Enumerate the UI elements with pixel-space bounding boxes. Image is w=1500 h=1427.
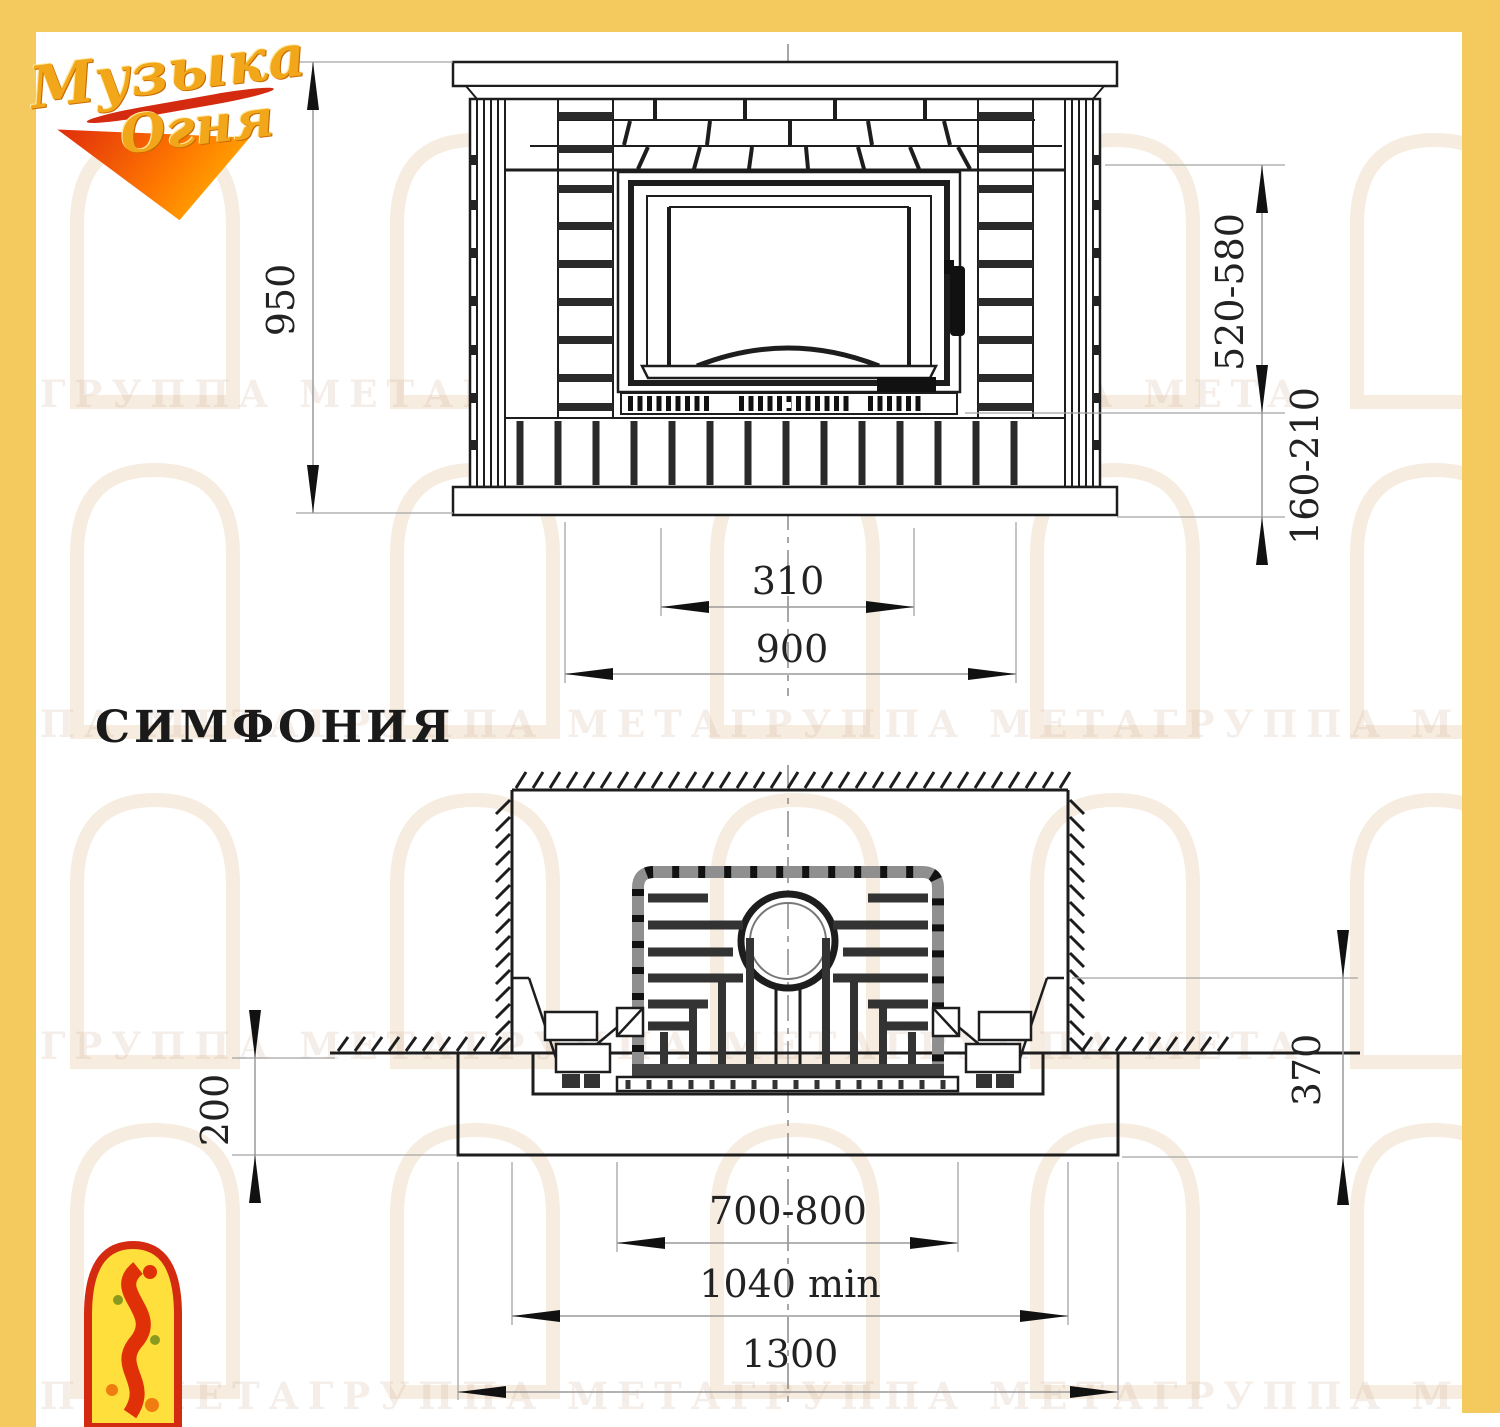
dim-firebox-top: 520-580 <box>1208 213 1252 371</box>
dim-insert-width: 700-800 <box>709 1189 867 1233</box>
dim-body-width: 900 <box>756 627 829 671</box>
dim-firebox-bottom: 160-210 <box>1283 387 1327 545</box>
emblem-dot <box>150 1335 160 1345</box>
base-plinth <box>453 487 1117 515</box>
frame-right-bar <box>1462 32 1500 1413</box>
brand-logo: Музыка Огня <box>18 22 318 235</box>
wall-hatching <box>338 772 1228 1052</box>
dim-grille-width: 310 <box>752 559 825 603</box>
catalog-page: ГРУППА МЕТАГРУППА МЕТАГРУППА МЕТА ПА МЕТ… <box>0 0 1500 1427</box>
dim-niche-width: 1040 min <box>699 1262 880 1306</box>
frame-top-bar <box>0 0 1500 32</box>
frame-left-bar <box>0 0 36 1427</box>
door-sill <box>642 366 936 378</box>
mantel-shelf <box>453 62 1117 86</box>
dim-hearth-height: 370 <box>1285 1034 1329 1107</box>
dim-foundation-width: 1300 <box>742 1332 839 1376</box>
dim-foundation-depth: 200 <box>193 1074 237 1147</box>
mantel-molding <box>466 86 1104 99</box>
emblem-dot <box>113 1295 123 1305</box>
brand-emblem <box>88 1245 178 1427</box>
dim-height: 950 <box>259 264 303 337</box>
emblem-dot <box>145 1398 159 1412</box>
door-handle <box>950 266 965 336</box>
door-handle-pivot <box>944 260 954 274</box>
emblem-dot <box>143 1265 157 1279</box>
firebox <box>618 172 965 414</box>
ash-lip <box>877 377 936 392</box>
emblem-dot <box>106 1384 118 1396</box>
model-title: СИМФОНИЯ <box>95 702 454 753</box>
fireplace-technical-drawing: 950 520-580 160-210 310 900 200 370 700-… <box>0 0 1500 1427</box>
plan-view <box>330 765 1360 1408</box>
